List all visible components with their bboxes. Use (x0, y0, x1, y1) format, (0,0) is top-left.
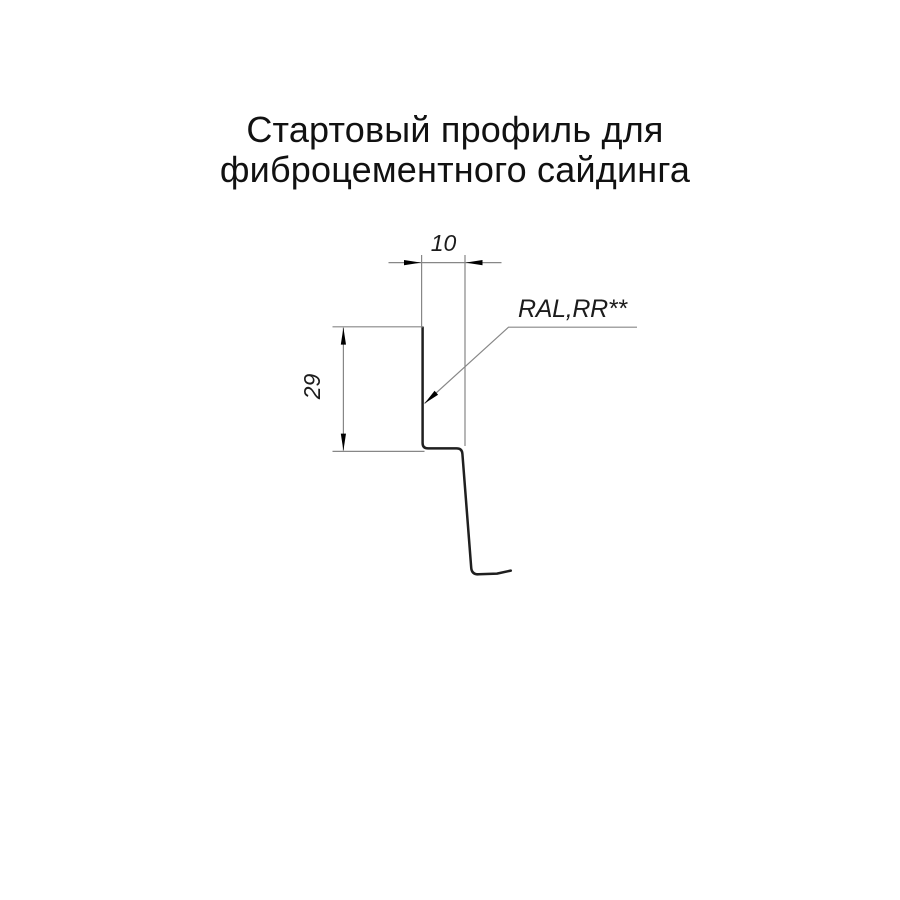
dim-width-arrowhead-left (404, 260, 421, 265)
dim-height-arrowhead-top (341, 328, 346, 345)
material-leader: RAL,RR** (425, 295, 638, 404)
page-root: Стартовый профиль для фиброцементного са… (0, 0, 900, 900)
dim-width-arrowhead-right (466, 260, 483, 265)
dim-height-value: 29 (299, 374, 325, 401)
dim-height: 29 (299, 327, 425, 452)
profile-drawing: 10 29 RAL,RR** (0, 0, 900, 900)
dim-height-arrowhead-bottom (341, 434, 346, 451)
dim-width-value: 10 (431, 230, 457, 256)
leader-line (425, 327, 638, 403)
dim-width: 10 (389, 230, 502, 446)
material-label: RAL,RR** (518, 295, 628, 323)
leader-arrowhead (425, 391, 439, 404)
